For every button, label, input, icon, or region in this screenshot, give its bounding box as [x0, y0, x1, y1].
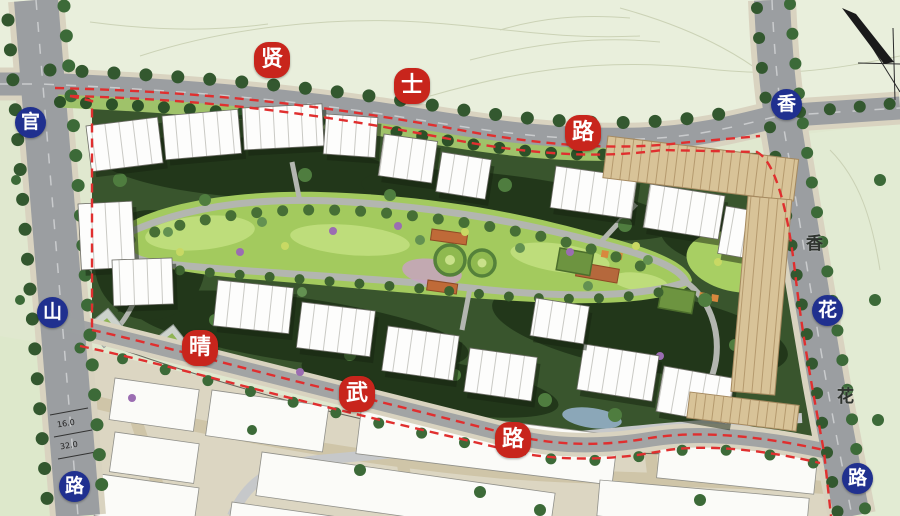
site-plan-screenshot: 贤 士 路 晴 武 路 官 山 路 香 花 路 香 花 16.0 32.0	[0, 0, 900, 516]
road-label-hua: 花	[812, 295, 843, 326]
road-label-guan: 官	[15, 107, 46, 138]
road-label-wu: 武	[339, 376, 375, 412]
road-label-qing: 晴	[182, 330, 218, 366]
pavement-text-hua: 花	[837, 382, 854, 407]
pavement-text-xiang: 香	[806, 229, 823, 254]
road-label-xian: 贤	[254, 42, 290, 78]
site-plan-map	[0, 0, 900, 516]
road-label-lu-west: 路	[59, 471, 90, 502]
road-label-shan: 山	[37, 297, 68, 328]
road-label-lu-north: 路	[565, 115, 601, 151]
road-label-shi: 士	[394, 68, 430, 104]
road-label-lu-east: 路	[842, 463, 873, 494]
road-label-xiang: 香	[771, 89, 802, 120]
road-label-lu-south: 路	[495, 422, 531, 458]
